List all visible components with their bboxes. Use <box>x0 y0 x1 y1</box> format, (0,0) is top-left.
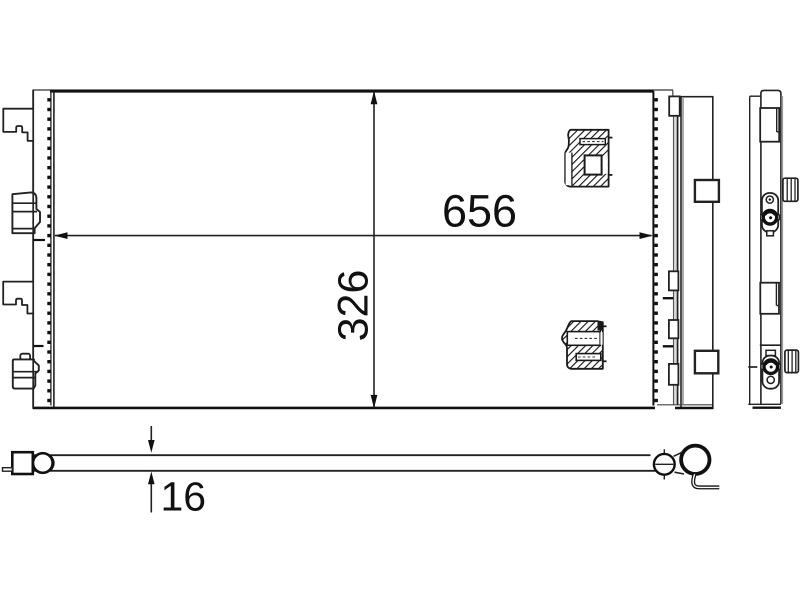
svg-text:656: 656 <box>442 186 517 237</box>
svg-text:326: 326 <box>330 270 378 342</box>
svg-text:16: 16 <box>161 474 207 520</box>
